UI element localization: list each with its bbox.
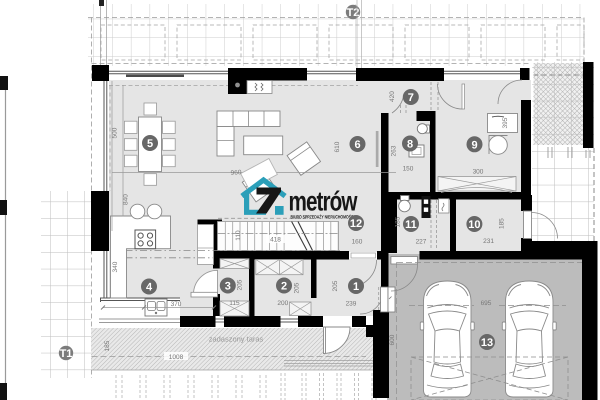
svg-text:11: 11 [405, 219, 417, 231]
svg-text:239: 239 [346, 301, 357, 308]
svg-text:227: 227 [416, 239, 427, 246]
svg-text:500: 500 [112, 127, 119, 138]
svg-text:8: 8 [407, 139, 413, 151]
svg-text:200: 200 [277, 300, 288, 307]
svg-text:13: 13 [481, 337, 493, 349]
svg-text:10: 10 [468, 219, 480, 231]
svg-text:110: 110 [235, 230, 242, 241]
svg-text:1: 1 [353, 281, 359, 293]
svg-text:185: 185 [395, 216, 402, 227]
svg-text:340: 340 [112, 261, 119, 272]
svg-text:BIURO SPRZEDAŻY NIERUCHOMOŚCI: BIURO SPRZEDAŻY NIERUCHOMOŚCI [291, 214, 355, 221]
svg-text:9: 9 [471, 140, 477, 152]
svg-text:231: 231 [483, 238, 494, 245]
svg-text:420: 420 [389, 91, 396, 102]
svg-text:395: 395 [502, 117, 509, 128]
svg-text:metrów: metrów [289, 186, 359, 216]
svg-text:5: 5 [147, 138, 153, 150]
svg-text:12: 12 [350, 218, 362, 230]
svg-text:6: 6 [354, 139, 360, 151]
svg-text:695: 695 [481, 300, 492, 307]
svg-text:115: 115 [229, 300, 240, 307]
svg-text:610: 610 [334, 141, 341, 152]
svg-text:185: 185 [499, 218, 506, 229]
svg-text:840: 840 [123, 194, 130, 205]
svg-text:263: 263 [391, 145, 398, 156]
svg-text:T2: T2 [347, 7, 360, 19]
svg-text:205: 205 [332, 280, 339, 291]
svg-text:370: 370 [171, 301, 182, 308]
svg-text:600: 600 [389, 334, 396, 345]
svg-text:3: 3 [225, 281, 231, 293]
svg-text:7: 7 [408, 92, 414, 104]
svg-text:960: 960 [230, 169, 242, 177]
svg-text:2: 2 [281, 281, 287, 293]
svg-text:T1: T1 [60, 348, 73, 360]
svg-text:150: 150 [403, 166, 414, 173]
svg-text:205: 205 [237, 279, 244, 290]
svg-text:300: 300 [473, 168, 484, 175]
svg-text:185: 185 [104, 340, 111, 351]
svg-text:418: 418 [270, 237, 281, 244]
svg-text:205: 205 [294, 282, 301, 293]
svg-text:4: 4 [146, 282, 153, 294]
svg-text:160: 160 [352, 239, 363, 246]
svg-text:1008: 1008 [169, 354, 184, 361]
svg-text:zadaszony taras: zadaszony taras [209, 335, 264, 344]
